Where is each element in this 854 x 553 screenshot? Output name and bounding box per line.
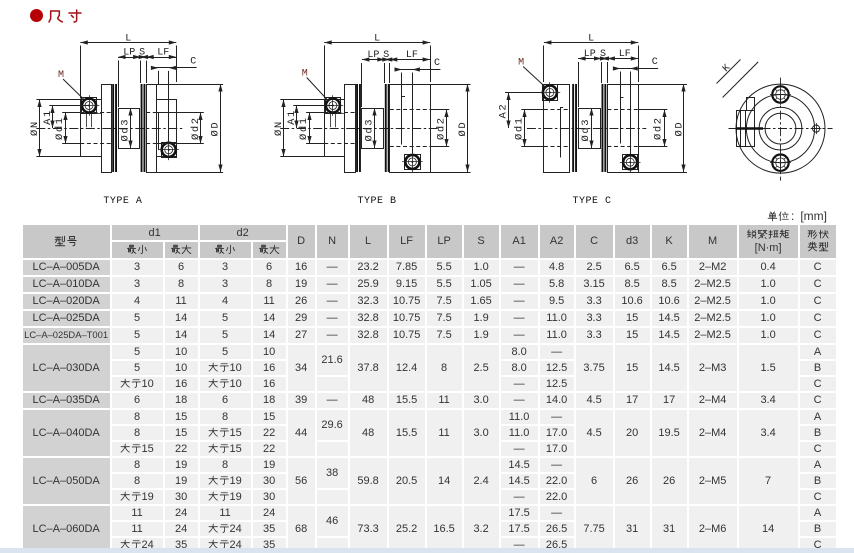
- svg-text:Ød3: Ød3: [364, 118, 376, 142]
- svg-text:LF: LF: [406, 50, 418, 61]
- svg-text:C: C: [434, 58, 440, 69]
- svg-text:K: K: [721, 63, 733, 75]
- svg-text:LP: LP: [123, 48, 135, 59]
- svg-text:A1: A1: [42, 109, 54, 125]
- svg-text:TYPE B: TYPE B: [357, 196, 396, 207]
- svg-text:LF: LF: [157, 48, 169, 59]
- svg-text:Ød2: Ød2: [435, 116, 447, 140]
- svg-text:S: S: [383, 50, 389, 61]
- svg-text:ØD: ØD: [457, 121, 469, 137]
- svg-text:A2: A2: [498, 103, 510, 119]
- svg-text:L: L: [374, 34, 380, 45]
- svg-text:ØD: ØD: [673, 121, 685, 137]
- svg-text:TYPE A: TYPE A: [103, 196, 142, 207]
- svg-text:S: S: [600, 49, 606, 60]
- svg-text:Ød3: Ød3: [580, 118, 592, 142]
- svg-text:Ød2: Ød2: [190, 116, 202, 140]
- svg-text:LF: LF: [619, 49, 631, 60]
- svg-text:C: C: [190, 56, 196, 67]
- svg-text:LP: LP: [367, 50, 379, 61]
- svg-text:Ød1: Ød1: [298, 116, 310, 140]
- svg-text:L: L: [588, 34, 594, 45]
- svg-text:Ød3: Ød3: [120, 118, 132, 142]
- svg-text:L: L: [125, 34, 131, 45]
- svg-text:TYPE C: TYPE C: [572, 196, 611, 207]
- svg-text:ØN: ØN: [29, 120, 41, 136]
- svg-text:ØD: ØD: [210, 121, 222, 137]
- svg-text:S: S: [139, 48, 145, 59]
- svg-text:A1: A1: [286, 109, 298, 125]
- svg-text:ØN: ØN: [273, 120, 285, 136]
- svg-text:LP: LP: [584, 49, 596, 60]
- svg-text:C: C: [652, 57, 658, 68]
- svg-text:Ød1: Ød1: [54, 116, 66, 140]
- svg-text:Ød1: Ød1: [513, 116, 525, 140]
- svg-text:Ød2: Ød2: [652, 116, 664, 140]
